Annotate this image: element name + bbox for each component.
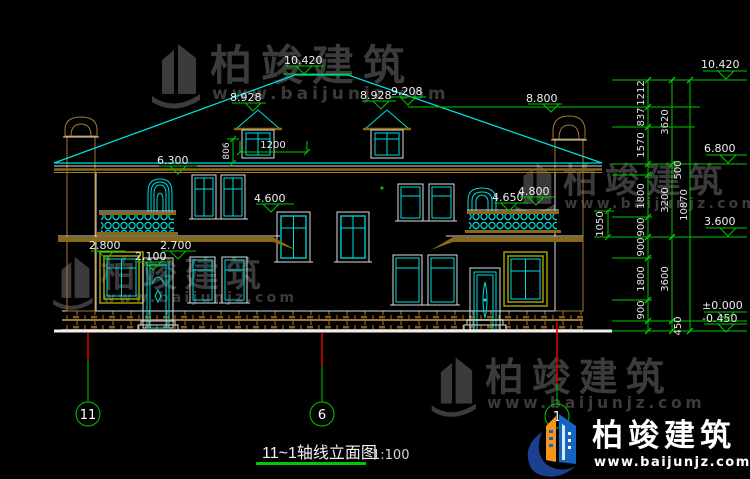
stray-point: [381, 187, 384, 190]
drawing-title-block: 11~1轴线立面图 1:100: [256, 444, 409, 465]
chain-total: 10870: [679, 189, 690, 221]
level-mid1: 3.600: [704, 215, 736, 228]
dormer-width-dim: 1200: [260, 140, 285, 151]
mark-roof-right: 9.208: [391, 85, 423, 98]
chain-seg: 900: [636, 300, 647, 319]
mark-ridge: 10.420: [284, 54, 323, 67]
watermark-url: www.baijunjz.com: [487, 393, 705, 412]
brand-logo-url: www.baijunjz.com: [594, 455, 750, 470]
axis-label-6: 6: [318, 408, 326, 423]
mark-window-sill: 2.100: [135, 250, 167, 263]
drawing-title: 11~1轴线立面图: [262, 444, 377, 462]
watermark-url: www.baijunjz.com: [564, 196, 750, 212]
chain-seg: 1800: [636, 266, 647, 291]
mark-eaves: 6.300: [157, 154, 189, 167]
balcony-right: [465, 210, 561, 233]
axis-label-11: 11: [80, 408, 97, 423]
cad-elevation-screenshot: 柏竣建筑 www.baijunjz.com 柏竣建筑 www.baijunjz.…: [0, 0, 750, 479]
chain-seg: 450: [673, 316, 684, 335]
mark-floor2: 4.600: [254, 192, 286, 205]
mark-dormer-right: 8.928: [360, 89, 392, 102]
chain-seg: 900: [636, 237, 647, 256]
watermark-brand: 柏竣建筑: [101, 255, 268, 294]
chain-seg: 900: [636, 217, 647, 236]
chain-group: 3600: [660, 266, 671, 291]
elevation-drawing: 柏竣建筑 www.baijunjz.com 柏竣建筑 www.baijunjz.…: [0, 0, 750, 479]
chain-seg: 1212: [636, 80, 647, 105]
level-zero: ±0.000: [702, 299, 743, 312]
mark-balcony-top: 4.800: [518, 185, 550, 198]
level-top: 10.420: [701, 58, 740, 71]
chain-seg: 1570: [636, 132, 647, 157]
level-neg: -0.450: [702, 312, 737, 325]
drawing-scale: 1:100: [372, 448, 409, 463]
title-underline: [256, 462, 366, 465]
dormer-height-dim: 806: [222, 142, 232, 159]
plinth-stone-band: [62, 311, 583, 330]
chain-group: 3200: [660, 187, 671, 212]
level-mid2: 6.800: [704, 142, 736, 155]
brand-logo-name: 柏竣建筑: [592, 418, 736, 453]
chain-seg: 1800: [636, 183, 647, 208]
mark-chimney: 8.800: [526, 92, 558, 105]
balcony-left: [97, 211, 178, 235]
chain-seg: 837: [636, 107, 647, 126]
mark-window-head-left: 2.800: [89, 239, 121, 252]
chain-group: 3620: [660, 109, 671, 134]
chain-seg: 500: [673, 160, 684, 179]
mark-dormer-left: 8.928: [230, 91, 262, 104]
railing-dim: 1050: [595, 211, 606, 236]
